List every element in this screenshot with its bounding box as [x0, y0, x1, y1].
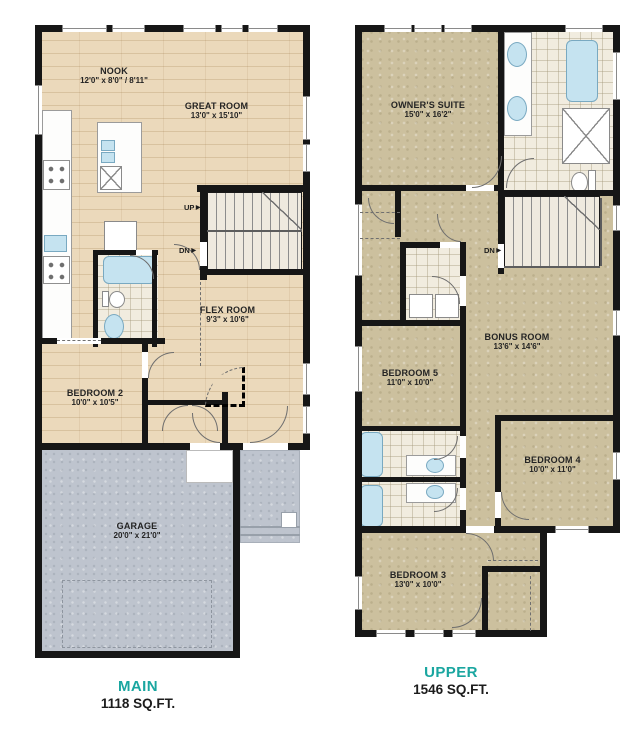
window: [355, 346, 362, 392]
window: [452, 630, 476, 637]
window: [444, 25, 472, 32]
door-opening: [460, 436, 466, 458]
room-label-bedroom3: BEDROOM 3 13'0" x 10'0": [370, 570, 466, 590]
stair-rail: [504, 266, 600, 268]
vanity-sink: [507, 96, 527, 121]
door-opening: [460, 276, 466, 306]
window: [414, 25, 442, 32]
upper-floor-title: UPPER: [371, 664, 531, 681]
door-opening: [440, 242, 460, 248]
washer: [409, 294, 433, 318]
shower: [562, 108, 610, 164]
room-label-bedroom4: BEDROOM 4 10'0" x 11'0": [504, 455, 601, 475]
closet-rail: [360, 212, 400, 213]
window: [384, 25, 412, 32]
interior-wall: [498, 28, 504, 274]
room-label-owners-suite: OWNER'S SUITE 15'0" x 16'2": [378, 100, 478, 120]
window: [613, 310, 620, 336]
exterior-wall: [540, 526, 547, 637]
interior-wall: [355, 426, 460, 431]
closet-wall: [482, 566, 544, 572]
room-dims: 13'0" x 10'0": [370, 581, 466, 590]
stair-rail: [600, 198, 602, 266]
door-opening: [460, 488, 466, 510]
bathtub: [360, 485, 383, 527]
window: [355, 576, 362, 610]
room-name: OWNER'S SUITE: [378, 100, 478, 110]
room-name: BEDROOM 4: [504, 455, 601, 465]
interior-wall: [482, 566, 488, 636]
vanity-sink: [507, 42, 527, 67]
window: [376, 630, 406, 637]
interior-wall: [495, 415, 615, 421]
floorplan-image: NOOK 12'0" x 8'0" / 8'11" GREAT ROOM 13'…: [0, 0, 640, 740]
interior-wall: [358, 477, 460, 482]
window: [613, 452, 620, 480]
room-name: BONUS ROOM: [467, 332, 567, 342]
upper-floor-area: 1546 SQ.FT.: [371, 682, 531, 697]
room-label-bedroom5: BEDROOM 5 11'0" x 10'0": [364, 368, 456, 388]
exterior-wall: [355, 25, 362, 637]
owners-bathtub: [566, 40, 598, 102]
stair-winder-line: [564, 196, 600, 230]
door-opening: [466, 526, 494, 533]
interior-wall: [400, 242, 406, 326]
closet-rail: [360, 238, 400, 239]
window: [565, 25, 603, 32]
window: [613, 52, 620, 100]
window: [355, 204, 362, 276]
room-name: BEDROOM 5: [364, 368, 456, 378]
window: [555, 526, 589, 533]
room-dims: 11'0" x 10'0": [364, 379, 456, 388]
interior-wall: [355, 320, 405, 326]
stairs-down-label: DN ▶: [484, 246, 501, 255]
interior-wall: [400, 320, 466, 326]
vanity-sink: [426, 458, 444, 473]
bathtub: [360, 432, 383, 477]
room-dims: 10'0" x 11'0": [504, 466, 601, 475]
window: [613, 205, 620, 231]
upper-floor-plan: OWNER'S SUITE 15'0" x 16'2" BEDROOM 5 11…: [0, 0, 640, 740]
door-opening: [495, 492, 501, 518]
interior-wall: [498, 190, 620, 196]
upper-floor-caption: UPPER 1546 SQ.FT.: [371, 664, 531, 697]
room-name: BEDROOM 3: [370, 570, 466, 580]
closet-wall: [395, 191, 401, 237]
down-text: DN: [484, 246, 495, 255]
room-dims: 15'0" x 16'2": [378, 111, 478, 120]
closet-rail: [530, 576, 531, 631]
closet-rail: [488, 560, 538, 561]
arrow-right-icon: ▶: [496, 248, 501, 254]
room-dims: 13'6" x 14'6": [467, 343, 567, 352]
window: [414, 630, 444, 637]
room-label-bonus-room: BONUS ROOM 13'6" x 14'6": [467, 332, 567, 352]
